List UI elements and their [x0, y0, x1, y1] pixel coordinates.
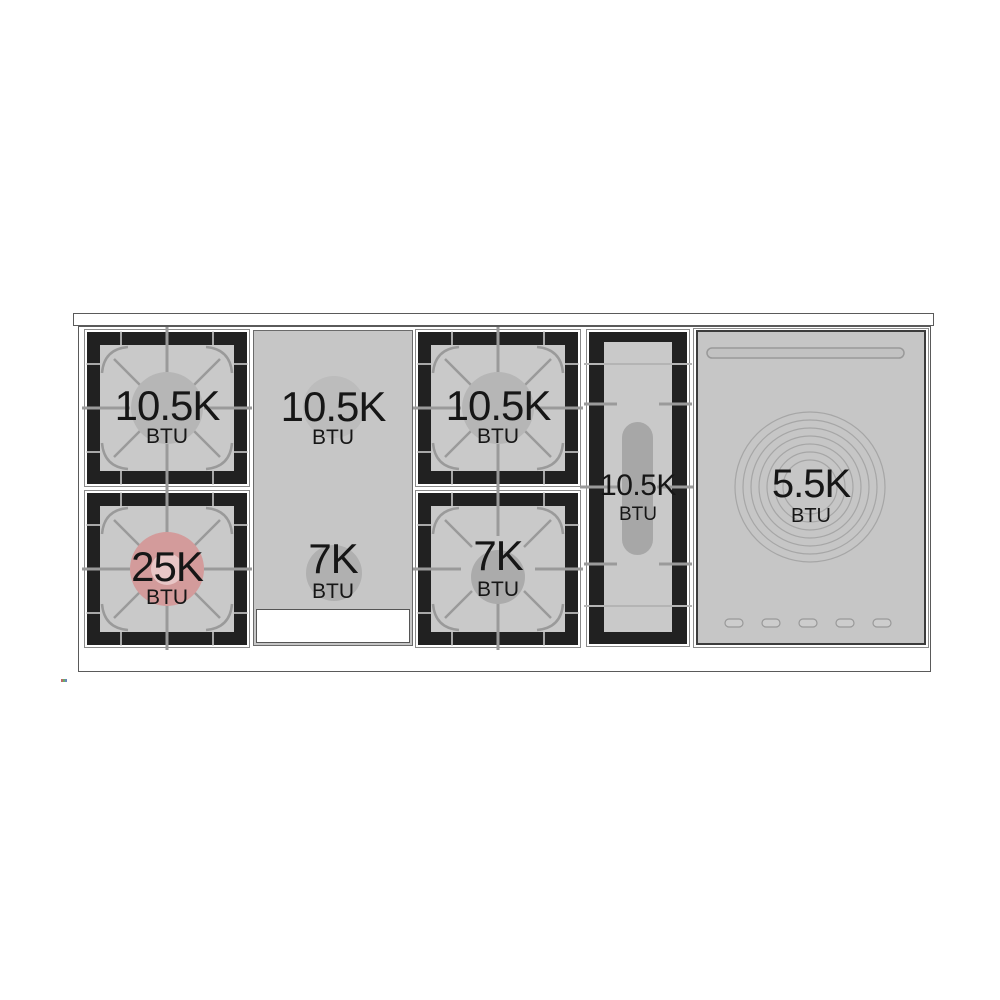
french-top-section: 5.5K BTU: [693, 328, 929, 648]
griddle-front-ledge: [256, 609, 410, 643]
burner-unit-label: BTU: [395, 426, 601, 447]
burner-center-front: 7K BTU: [415, 490, 581, 648]
burner-center-rear: 10.5K BTU: [415, 329, 581, 487]
burner-left-front-25k: 25K BTU: [84, 490, 250, 648]
burner-block-left: 10.5K BTU: [84, 329, 250, 649]
burner-block-center: 10.5K BTU: [415, 329, 581, 649]
burner-power-label: 7K: [395, 535, 601, 577]
print-artifact: [61, 679, 68, 682]
vent-slots-icon: [725, 619, 891, 627]
rangetop-btu-diagram: 10.5K BTU: [0, 0, 1000, 1000]
plate-handle-icon: [707, 348, 904, 358]
griddle-section: 10.5K BTU 7K BTU: [253, 330, 413, 646]
burner-left-rear: 10.5K BTU: [84, 329, 250, 487]
french-top-unit-label: BTU: [674, 506, 948, 526]
burner-unit-label: BTU: [395, 579, 601, 600]
back-rail: [73, 313, 934, 326]
burner-power-label: 10.5K: [395, 385, 601, 427]
french-top-power-label: 5.5K: [674, 464, 948, 504]
